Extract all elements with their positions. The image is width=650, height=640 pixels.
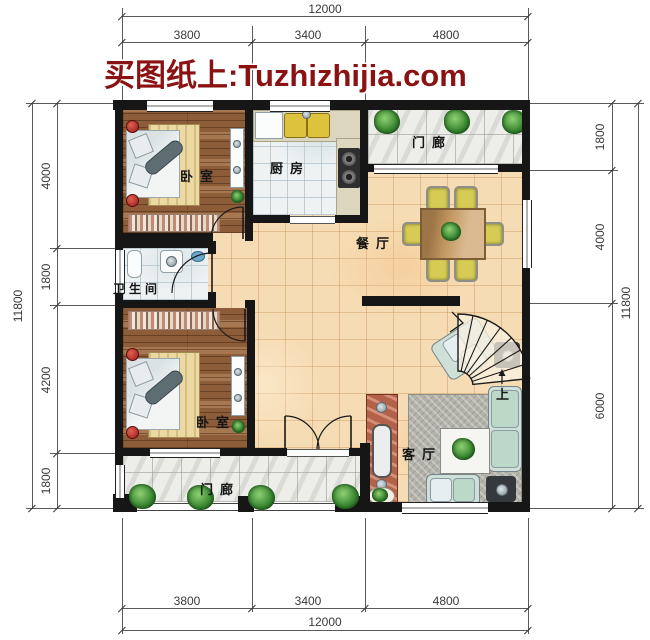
room-label-dining: 餐厅	[356, 233, 396, 252]
dim-seg: 4000	[39, 150, 53, 202]
dim-extension-line	[528, 518, 529, 634]
porch-plant-icon	[129, 484, 156, 509]
interior-wall	[245, 215, 290, 223]
bedside-lamp	[126, 120, 139, 133]
interior-wall	[335, 215, 368, 223]
sofa-cushion	[491, 430, 519, 468]
dresser-knob	[234, 368, 242, 376]
sofa-cushion	[453, 478, 475, 502]
room-label-bedroom-bottom: 卧室	[196, 412, 236, 431]
dim-total-bottom: 12000	[300, 615, 350, 629]
exterior-wall	[522, 268, 530, 512]
exterior-wall	[115, 100, 123, 250]
exterior-wall	[213, 100, 270, 110]
dim-seg: 4200	[39, 354, 53, 406]
dim-total-right: 11800	[619, 277, 633, 329]
window	[147, 100, 213, 112]
dim-extension-line	[530, 508, 644, 509]
interior-wall	[115, 233, 213, 241]
dim-seg: 3800	[160, 594, 214, 608]
dim-line	[612, 103, 613, 508]
interior-wall	[247, 300, 255, 455]
interior-wall	[255, 448, 287, 456]
dim-extension-line	[252, 518, 253, 612]
dim-extension-line	[50, 453, 115, 454]
dresser-knob	[234, 394, 242, 402]
dim-extension-line	[530, 103, 644, 104]
porch-plant-icon	[444, 109, 470, 134]
dim-seg: 4800	[419, 28, 473, 42]
plant-icon	[231, 190, 244, 203]
toilet-symbol	[127, 250, 142, 278]
window	[150, 448, 220, 458]
dim-line	[638, 103, 639, 508]
fridge-symbol	[255, 112, 283, 139]
kitchen-door-sill	[290, 216, 335, 224]
room-label-bathroom: 卫生间	[113, 280, 161, 297]
window	[522, 200, 532, 268]
speaker-icon	[376, 402, 387, 413]
dim-extension-line	[365, 518, 366, 612]
dim-seg: 3400	[281, 594, 335, 608]
floor-plan-canvas: 卧室 厨房 门廊 餐厅 卫生间 卧室 门廊 客厅 上 12000 3800 34…	[0, 0, 650, 640]
window	[115, 465, 125, 498]
exterior-wall	[488, 502, 530, 512]
centerpiece-plant-icon	[441, 222, 461, 241]
interior-wall	[362, 296, 460, 306]
porch-plant-icon	[248, 485, 275, 510]
kitchen-sink	[307, 113, 330, 138]
interior-wall	[115, 300, 213, 308]
interior-wall	[360, 443, 370, 512]
dim-extension-line	[528, 8, 529, 100]
dim-seg: 1800	[39, 455, 53, 507]
dim-line	[122, 608, 528, 609]
room-label-living: 客厅	[402, 444, 442, 463]
porch-plant-icon	[332, 484, 359, 509]
lamp-icon	[496, 484, 508, 496]
interior-wall	[220, 448, 255, 456]
rug-symbol	[128, 311, 220, 330]
dim-seg: 1800	[593, 111, 607, 163]
dim-line	[122, 630, 528, 631]
dim-extension-line	[26, 508, 115, 509]
dim-extension-line	[122, 518, 123, 634]
window	[374, 164, 498, 174]
porch-plant-icon	[374, 109, 400, 134]
interior-wall	[208, 241, 216, 254]
dim-extension-line	[530, 303, 618, 304]
plant-icon	[372, 488, 388, 502]
dim-seg: 3400	[281, 28, 335, 42]
interior-wall	[498, 164, 524, 172]
dresser-symbol	[230, 128, 244, 188]
bedside-lamp	[126, 194, 139, 207]
tv-symbol	[372, 424, 392, 478]
dresser-symbol	[231, 356, 245, 416]
soap-dish-icon	[191, 251, 205, 262]
interior-wall	[115, 241, 216, 248]
bedside-lamp	[126, 426, 139, 439]
lamp-icon	[502, 350, 514, 362]
exterior-wall	[115, 293, 123, 465]
dim-line	[122, 42, 528, 43]
room-label-porch-bottom: 门廊	[200, 479, 240, 498]
watermark-text: 买图纸上:Tuzhizhijia.com	[104, 50, 467, 95]
window	[270, 100, 330, 112]
room-label-porch-top: 门廊	[412, 132, 452, 151]
window	[402, 502, 488, 514]
bedside-lamp	[126, 348, 139, 361]
dim-extension-line	[50, 248, 115, 249]
dim-seg: 4800	[419, 594, 473, 608]
coffee-table-plant-icon	[452, 438, 475, 460]
interior-wall	[115, 448, 150, 456]
dim-seg: 6000	[593, 380, 607, 432]
drain-icon	[166, 256, 177, 267]
dim-total-top: 12000	[300, 2, 350, 16]
burner-icon	[342, 152, 356, 166]
dim-total-left: 11800	[11, 280, 25, 332]
interior-wall	[360, 164, 374, 172]
rug-symbol	[128, 214, 220, 232]
room-label-bedroom-top: 卧室	[180, 166, 220, 185]
dim-seg: 4000	[593, 211, 607, 263]
dim-line	[122, 16, 528, 17]
dim-line	[32, 103, 33, 508]
dresser-knob	[233, 140, 241, 148]
dim-extension-line	[50, 305, 115, 306]
interior-wall	[360, 100, 368, 223]
burner-icon	[342, 170, 356, 184]
dim-extension-line	[530, 170, 618, 171]
dim-extension-line	[26, 103, 115, 104]
dim-seg: 3800	[160, 28, 214, 42]
stairs-up-label: 上	[496, 384, 509, 403]
room-label-kitchen: 厨房	[270, 158, 310, 177]
dresser-knob	[233, 166, 241, 174]
exterior-wall	[522, 100, 530, 200]
entry-door-sill	[287, 449, 349, 457]
sofa-cushion	[430, 478, 452, 502]
dim-seg: 1800	[39, 251, 53, 303]
